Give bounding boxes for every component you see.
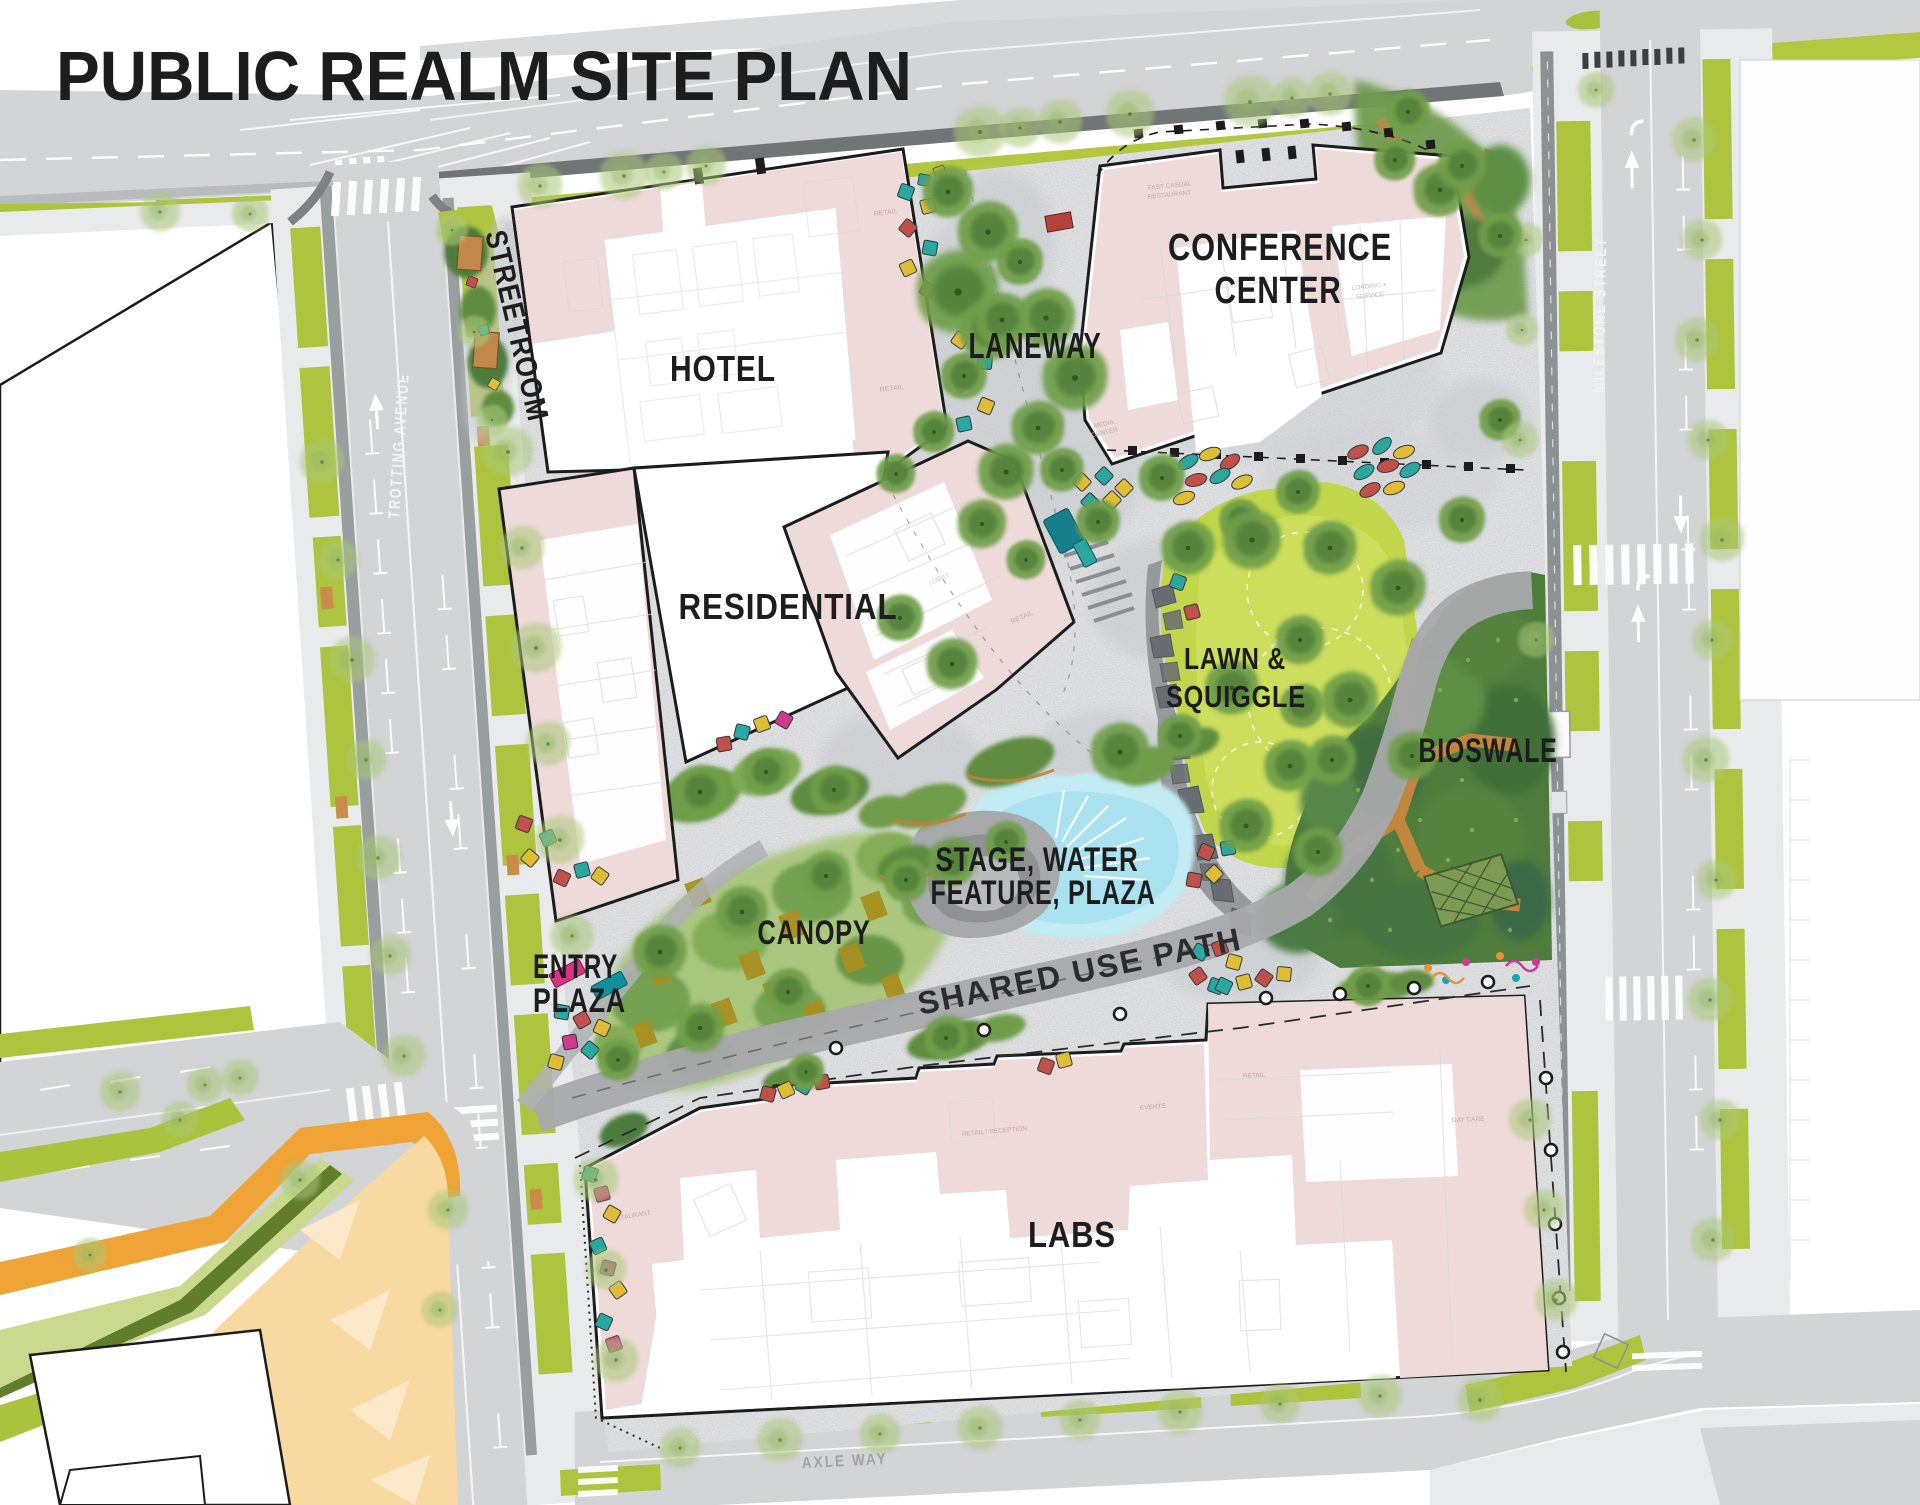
svg-text:RETAIL: RETAIL — [1243, 1072, 1266, 1080]
svg-text:ENTRY: ENTRY — [533, 948, 618, 986]
svg-text:SQUIGGLE: SQUIGGLE — [1166, 679, 1306, 714]
svg-text:HOTEL: HOTEL — [670, 348, 776, 389]
svg-text:CONFERENCE: CONFERENCE — [1168, 227, 1392, 269]
svg-text:LAWN &: LAWN & — [1184, 641, 1286, 676]
svg-text:DAY CARE: DAY CARE — [1452, 1116, 1486, 1124]
svg-text:CANOPY: CANOPY — [758, 914, 871, 952]
svg-text:LANEWAY: LANEWAY — [969, 325, 1102, 366]
svg-text:FEATURE, PLAZA: FEATURE, PLAZA — [931, 874, 1156, 912]
svg-text:PUBLIC REALM SITE PLAN: PUBLIC REALM SITE PLAN — [56, 37, 912, 115]
svg-text:CENTER: CENTER — [1215, 270, 1342, 312]
svg-text:MILESTONE STREET: MILESTONE STREET — [1591, 237, 1610, 393]
svg-text:LABS: LABS — [1028, 1214, 1116, 1255]
svg-text:PLAZA: PLAZA — [533, 982, 626, 1020]
svg-text:BIOSWALE: BIOSWALE — [1419, 732, 1558, 770]
svg-text:RESIDENTIAL: RESIDENTIAL — [679, 586, 898, 627]
